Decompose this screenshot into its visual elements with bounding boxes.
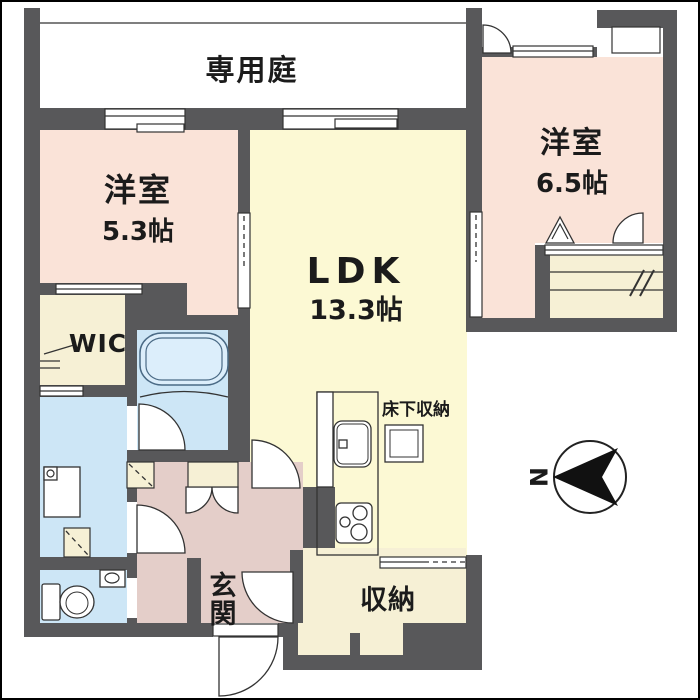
wall (137, 318, 240, 330)
ldk-size: 13.3帖 (309, 295, 403, 326)
wall (24, 623, 213, 637)
entrance-label-char1: 玄 (210, 570, 237, 602)
wall (466, 555, 482, 670)
wall (187, 558, 201, 623)
wall (303, 487, 335, 548)
counter-end (317, 392, 333, 487)
compass-north-label: N (524, 467, 552, 487)
floor-plan-canvas: 専用庭 洋室 5.3帖 LDK 13.3帖 洋室 6.5帖 WIC 床下収納 収… (0, 0, 700, 700)
bay-window-bedroom2 (612, 27, 660, 53)
wall (535, 245, 550, 320)
bedroom2-label: 洋室 (540, 126, 604, 161)
underfloor-storage-label: 床下収納 (382, 399, 450, 420)
entrance-label-char2: 関 (210, 599, 237, 630)
wall-notch (350, 633, 360, 655)
wall (663, 10, 677, 332)
bedroom1-floor-ext (187, 283, 238, 315)
window-step (335, 119, 397, 128)
wall (228, 330, 250, 462)
bedroom1-size: 5.3帖 (102, 217, 174, 247)
hall-closet-icon (188, 462, 238, 487)
wic-label: WIC (69, 329, 127, 358)
wall (137, 450, 240, 462)
ldk-label: LDK (307, 251, 406, 292)
wall (24, 557, 137, 570)
wall (466, 318, 677, 332)
wall (40, 108, 467, 130)
bedroom2-nook-floor (482, 243, 535, 318)
toilet-icon (42, 584, 60, 620)
underfloor-storage-hatch (385, 425, 423, 462)
opening-bath-door (127, 406, 137, 450)
bedroom1-label: 洋室 (104, 171, 172, 209)
wall (24, 8, 40, 637)
storage-label: 収納 (360, 584, 416, 616)
opening-toilet-door (127, 578, 137, 618)
garden-label: 専用庭 (205, 53, 298, 87)
opening-washroom-door (127, 502, 137, 553)
floor-plan: 専用庭 洋室 5.3帖 LDK 13.3帖 洋室 6.5帖 WIC 床下収納 収… (0, 0, 700, 700)
bedroom2-size: 6.5帖 (536, 169, 608, 199)
window-step (137, 124, 184, 132)
